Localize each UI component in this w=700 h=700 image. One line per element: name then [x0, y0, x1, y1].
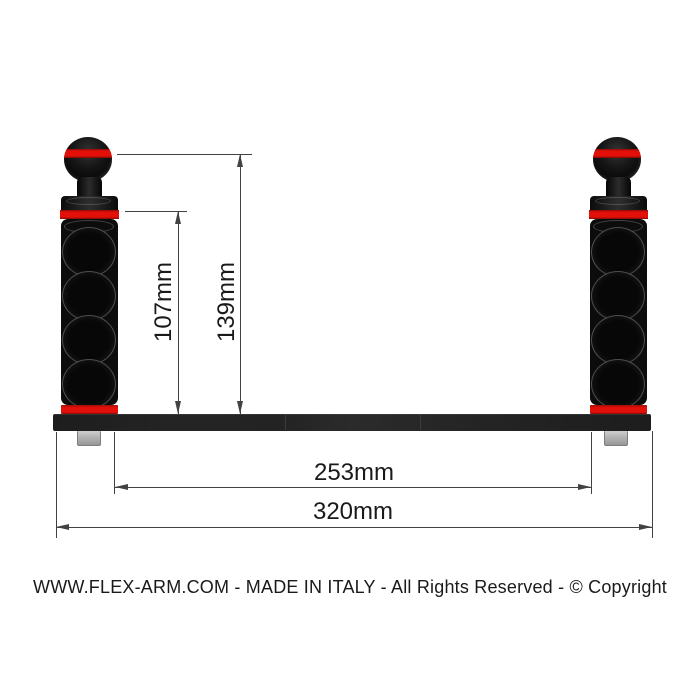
product-dimension-diagram: 139mm 107mm 253mm 320mm WWW.FLEX-ARM.COM… [0, 0, 700, 700]
arrowhead-icon [56, 524, 69, 530]
left-arm-cap [61, 196, 118, 219]
dimension-line-320 [56, 527, 652, 528]
arrowhead-icon [237, 401, 243, 414]
extension-line-outer-left [56, 432, 57, 538]
left-arm-segment-2 [62, 271, 116, 321]
dimension-line-139 [240, 154, 241, 414]
right-ball-neck [606, 177, 631, 198]
left-handle-assembly [61, 137, 119, 414]
left-ball-mount [64, 137, 112, 182]
dimension-label-107: 107mm [151, 242, 177, 362]
dimension-label-139: 139mm [214, 242, 240, 362]
left-arm-cap-red-band [60, 210, 119, 219]
arrowhead-icon [175, 401, 181, 414]
extension-line-inner-right [591, 432, 592, 494]
dimension-label-320: 320mm [283, 499, 423, 525]
dimension-line-107 [178, 211, 179, 414]
arrowhead-icon [578, 484, 591, 490]
left-arm-segment-4 [62, 359, 116, 405]
right-arm-segment-4 [591, 359, 645, 405]
right-arm-cap-red-band [589, 210, 648, 219]
arrowhead-icon [237, 154, 243, 167]
left-arm-cap-top [66, 197, 111, 205]
left-arm-segment-1 [62, 227, 116, 277]
arrowhead-icon [175, 211, 181, 224]
extension-line-outer-right [652, 431, 653, 538]
right-handle-assembly [590, 137, 648, 414]
left-ball-neck [77, 177, 102, 198]
tray-seam [420, 415, 421, 430]
extension-line-ball-band [117, 154, 252, 155]
copyright-caption: WWW.FLEX-ARM.COM - MADE IN ITALY - All R… [0, 577, 700, 598]
dimension-label-253: 253mm [284, 460, 424, 486]
right-ball-red-band [593, 149, 641, 158]
tray-seam [285, 415, 286, 430]
mounting-tray [53, 414, 651, 431]
arrowhead-icon [115, 484, 128, 490]
right-arm-cap [590, 196, 647, 219]
right-tray-bolt [604, 431, 628, 446]
left-flex-arm-body [61, 219, 118, 405]
right-arm-base-red-band [590, 405, 647, 414]
right-arm-segment-2 [591, 271, 645, 321]
right-arm-segment-3 [591, 315, 645, 365]
right-arm-cap-top [595, 197, 640, 205]
left-ball-red-band [64, 149, 112, 158]
right-flex-arm-body [590, 219, 647, 405]
left-arm-segment-3 [62, 315, 116, 365]
arrowhead-icon [639, 524, 652, 530]
right-arm-segment-1 [591, 227, 645, 277]
right-ball-mount [593, 137, 641, 182]
left-arm-base-red-band [61, 405, 118, 414]
dimension-line-253 [115, 487, 591, 488]
left-tray-bolt [77, 431, 101, 446]
